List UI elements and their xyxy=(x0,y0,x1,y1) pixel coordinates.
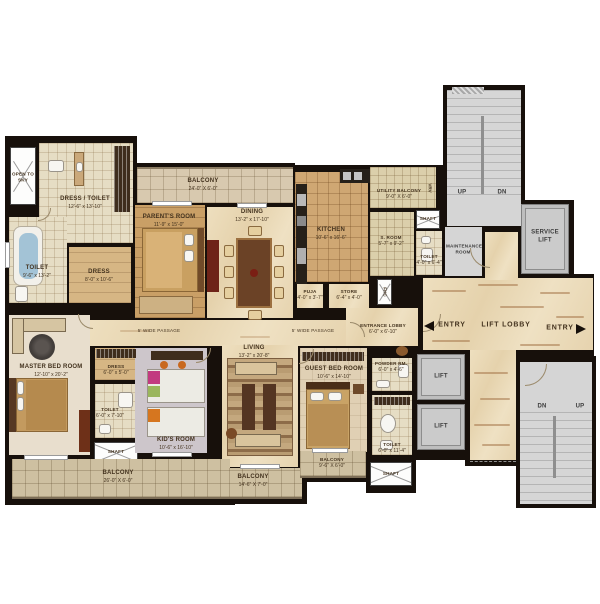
room-label-fhc: FHC xyxy=(383,287,388,296)
marble-streak xyxy=(480,398,510,400)
bed-headboard xyxy=(306,382,350,389)
room-label-shaft-master: SHAFT xyxy=(108,449,124,455)
room-label-dress-top: DRESS8'-0" x 10'-6" xyxy=(85,269,113,283)
stair-divider xyxy=(553,416,556,478)
room-label-dress-master: DRESS6'-0" x 5'-0" xyxy=(103,364,128,376)
marble-streak xyxy=(540,292,570,294)
wardrobe xyxy=(207,240,219,292)
sink-fixture xyxy=(376,380,390,388)
marble-streak xyxy=(500,306,544,308)
window xyxy=(5,242,10,268)
toilet-fixture xyxy=(118,392,133,408)
desk xyxy=(79,410,90,452)
wardrobe xyxy=(96,349,136,358)
wardrobe xyxy=(374,397,410,405)
chair xyxy=(160,361,168,369)
sofa xyxy=(242,384,255,430)
room-label-maintenance: MAINTENANCE ROOM xyxy=(446,243,480,254)
label-entry-right: ENTRY xyxy=(546,325,573,334)
chair xyxy=(248,226,262,236)
bed-headboard xyxy=(9,378,16,432)
room-label-vrv: VRV xyxy=(428,183,433,192)
label-lift-1: LIFT xyxy=(434,373,447,381)
room-label-shaft-guest: SHAFT xyxy=(383,471,399,477)
pillow xyxy=(184,234,194,246)
label-stairs-top-dn: DN xyxy=(497,189,506,197)
room-label-open-to-sky: OPEN TO SKY xyxy=(10,171,36,182)
marble-streak xyxy=(240,336,270,338)
room-label-balcony-guest: BALCONY9'-6" X 6'-0" xyxy=(319,457,345,469)
sofa xyxy=(235,362,277,375)
label-passage-left: 5' WIDE PASSAGE xyxy=(138,328,181,334)
room-label-toilet-guest: TOILET6'-0" x 11'-4" xyxy=(378,442,406,454)
stairs-top-landing xyxy=(447,196,521,226)
marble-streak xyxy=(520,344,560,346)
vent-hatch xyxy=(452,87,484,94)
pillow xyxy=(148,409,160,422)
label-stairs-bottom-dn: DN xyxy=(537,403,546,411)
pouf xyxy=(226,428,237,439)
bed-blanket xyxy=(308,404,348,446)
room-label-living: LIVING13'-2" x 20'-8" xyxy=(239,345,270,359)
label-service-lift: SERVICE LIFT xyxy=(528,230,562,245)
room-label-s-room: S. ROOM5'-7" x 9'-2" xyxy=(378,235,403,247)
toilet-fixture xyxy=(48,160,64,172)
bed-blanket xyxy=(26,380,66,430)
room-label-toilet-s: TOILET4'-0" x 6'-4" xyxy=(416,254,441,266)
pillow xyxy=(17,397,24,411)
entry-arrow-right-icon xyxy=(576,324,586,334)
floor-plan: OPEN TO SKY DRESS / TOILET12'-6" x 13'-1… xyxy=(0,0,600,604)
sink-fixture xyxy=(76,162,83,172)
room-label-toilet-master: TOILET6'-0" x 7'-10" xyxy=(96,407,124,419)
marble-streak xyxy=(474,424,510,426)
pillow xyxy=(17,381,24,395)
marble-streak xyxy=(482,444,510,446)
label-lift-2: LIFT xyxy=(434,423,447,431)
marble-streak xyxy=(474,372,508,374)
marble-streak xyxy=(432,340,470,342)
chair xyxy=(224,287,234,299)
sink-fixture xyxy=(343,172,351,180)
chair xyxy=(248,310,262,320)
window xyxy=(312,448,348,453)
toilet-fixture xyxy=(15,286,28,302)
fridge xyxy=(297,248,306,264)
chair xyxy=(224,245,234,257)
room-label-dress-toilet: DRESS / TOILET12'-6" x 13'-10" xyxy=(60,196,110,210)
sofa xyxy=(235,434,281,447)
entry-arrow-left-icon xyxy=(424,321,434,331)
room-label-balcony-top: BALCONY24'-0" X 6'-0" xyxy=(187,178,218,192)
room-label-master: MASTER BED ROOM12'-10" x 20'-2" xyxy=(20,364,83,378)
chair xyxy=(274,287,284,299)
chair xyxy=(274,245,284,257)
label-lift-lobby: LIFT LOBBY xyxy=(481,322,530,331)
marble-streak xyxy=(556,316,584,318)
room-label-utility-balcony: UTILITY BALCONY9'-0" X 6'-0" xyxy=(377,188,421,200)
window xyxy=(24,455,68,460)
sink-fixture xyxy=(99,424,111,434)
room-label-puja: PUJA4'-0" x 3'-7" xyxy=(297,289,322,301)
window xyxy=(240,464,280,469)
sofa xyxy=(12,318,24,354)
room-label-entrance-lobby: ENTRANCE LOBBY6'-0" x 6'-10" xyxy=(360,323,406,335)
chair xyxy=(224,266,234,278)
sink-fixture xyxy=(354,172,362,180)
window xyxy=(237,203,267,208)
sink-fixture xyxy=(421,236,431,244)
pouf xyxy=(396,346,408,356)
room-label-kitchen: KITCHEN10'-6" x 16'-6" xyxy=(316,227,347,241)
room-label-balcony-master: BALCONY26'-0" X 6'-0" xyxy=(102,470,133,484)
room-label-dining: DINING13'-2" x 17'-10" xyxy=(235,209,269,223)
label-entry-left: ENTRY xyxy=(438,322,465,331)
pillow xyxy=(148,386,160,397)
stairs-bottom xyxy=(520,412,592,504)
stair-divider xyxy=(481,116,484,194)
label-stairs-bottom-up: UP xyxy=(576,403,585,411)
toilet-fixture xyxy=(380,414,396,433)
room-label-parents: PARENT'S ROOM11'-9" x 15'-0" xyxy=(143,214,196,228)
pillow xyxy=(148,371,160,384)
bed-blanket xyxy=(146,232,182,288)
label-stairs-top-up: UP xyxy=(458,189,467,197)
dashed-threshold xyxy=(470,461,516,462)
sofa xyxy=(263,384,276,430)
round-rug xyxy=(29,334,55,360)
sink-fixture xyxy=(297,216,306,226)
room-label-shaft-top: SHAFT xyxy=(420,216,436,222)
window xyxy=(152,452,192,457)
chair xyxy=(274,266,284,278)
label-passage-right: 5' WIDE PASSAGE xyxy=(292,328,335,334)
room-label-powder: POWDER RM.6'-0" x 4'-6" xyxy=(375,361,407,373)
wardrobe xyxy=(114,146,130,212)
sofa xyxy=(139,296,193,314)
pillow xyxy=(184,250,194,262)
pillow xyxy=(328,392,342,401)
stove xyxy=(297,194,306,206)
centerpiece xyxy=(250,269,258,277)
room-label-toilet-top: TOILET9'-6" x 13'-2" xyxy=(23,265,51,279)
chair xyxy=(178,361,186,369)
marble-streak xyxy=(432,290,466,292)
window xyxy=(152,201,192,206)
room-label-store: STORE6'-4" x 4'-0" xyxy=(336,289,361,301)
room-label-balcony-living: BALCONY14'-6" X 7'-0" xyxy=(237,474,268,488)
room-label-kids: KID'S ROOM10'-6" x 16'-10" xyxy=(157,437,195,451)
pillow xyxy=(310,392,324,401)
marble-streak xyxy=(478,284,518,286)
nightstand xyxy=(353,384,364,394)
room-label-guest: GUEST BED ROOM10'-6" x 14'-10" xyxy=(305,366,363,380)
